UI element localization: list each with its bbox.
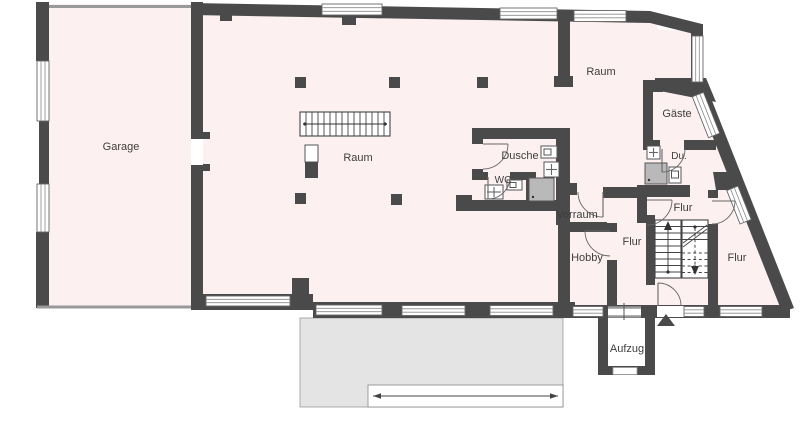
window	[573, 307, 603, 317]
room-label-vorraum: Vorraum	[556, 209, 598, 221]
column	[477, 77, 488, 88]
window	[402, 306, 465, 316]
toilet	[669, 167, 681, 183]
floor-plan-canvas: Garage Raum Dusche WC Raum Gäste Du. Vor…	[0, 0, 810, 430]
chimney	[305, 145, 318, 162]
toilet	[541, 146, 557, 158]
column	[295, 77, 306, 88]
window	[684, 307, 704, 317]
garage-floor	[43, 4, 197, 308]
room-label-room-right: Raum	[586, 66, 615, 78]
window	[574, 11, 626, 22]
sink	[544, 162, 559, 177]
window	[720, 307, 762, 317]
room-label-flur-right: Flur	[728, 252, 747, 264]
window	[206, 296, 290, 306]
room-label-flur-upper: Flur	[674, 202, 693, 214]
room-label-aufzug: Aufzug	[610, 343, 644, 355]
shower	[529, 178, 554, 201]
dimension-bar	[368, 385, 563, 407]
room-label-main-room: Raum	[343, 152, 372, 164]
column	[391, 194, 402, 205]
room-label-garage: Garage	[103, 141, 140, 153]
room-label-gaeste: Gäste	[662, 108, 691, 120]
room-label-hobby: Hobby	[571, 252, 603, 264]
window	[37, 184, 49, 232]
shower	[645, 163, 667, 184]
window	[490, 306, 553, 316]
room-label-wc: WC	[495, 175, 512, 186]
room-label-du: Du.	[671, 151, 687, 162]
window	[500, 8, 557, 19]
floor-plan: Garage Raum Dusche WC Raum Gäste Du. Vor…	[0, 0, 810, 430]
sink	[647, 146, 660, 159]
room-label-dusche: Dusche	[501, 150, 538, 162]
column	[389, 77, 400, 88]
stairwell	[655, 220, 708, 278]
window	[322, 4, 382, 15]
window	[37, 61, 49, 121]
window	[316, 305, 382, 315]
room-label-flur-middle: Flur	[623, 236, 642, 248]
column	[295, 193, 306, 204]
window	[692, 36, 703, 82]
